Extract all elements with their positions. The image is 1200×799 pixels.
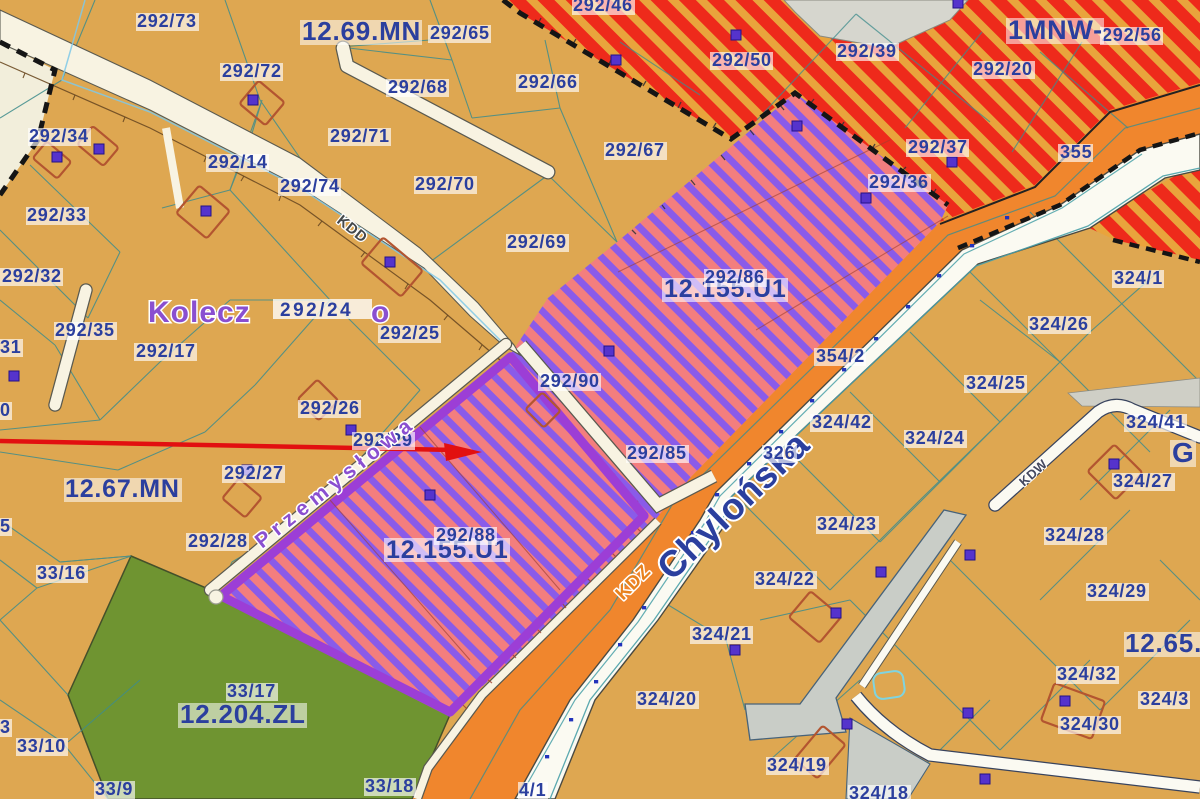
svg-text:292/37: 292/37 [908, 137, 968, 157]
svg-text:324/24: 324/24 [905, 428, 965, 448]
svg-text:292/67: 292/67 [605, 140, 665, 160]
svg-text:324/42: 324/42 [812, 412, 872, 432]
svg-text:0: 0 [0, 400, 11, 420]
svg-text:324/23: 324/23 [817, 514, 877, 534]
svg-text:324/28: 324/28 [1045, 525, 1105, 545]
svg-text:292/35: 292/35 [55, 320, 115, 340]
svg-text:292/14: 292/14 [208, 152, 268, 172]
svg-text:292/68: 292/68 [388, 77, 448, 97]
svg-text:33/16: 33/16 [37, 563, 86, 583]
svg-text:292/56: 292/56 [1102, 25, 1162, 45]
svg-text:324/18: 324/18 [849, 783, 909, 799]
svg-text:355: 355 [1060, 142, 1092, 162]
svg-text:292/72: 292/72 [222, 61, 282, 81]
svg-text:292/26: 292/26 [300, 398, 360, 418]
svg-text:33/10: 33/10 [17, 736, 66, 756]
svg-text:292/71: 292/71 [330, 126, 390, 146]
svg-text:324/26: 324/26 [1029, 314, 1089, 334]
svg-text:4/1: 4/1 [519, 780, 546, 799]
svg-text:292/28: 292/28 [188, 531, 248, 551]
svg-text:324/41: 324/41 [1126, 412, 1186, 432]
svg-text:292/90: 292/90 [540, 371, 600, 391]
svg-text:292/73: 292/73 [137, 11, 197, 31]
svg-text:12.67.MN: 12.67.MN [65, 475, 180, 503]
svg-text:324/25: 324/25 [966, 373, 1026, 393]
svg-text:324/21: 324/21 [692, 624, 752, 644]
svg-text:G: G [1172, 437, 1195, 468]
svg-text:3: 3 [0, 717, 11, 737]
svg-text:33/9: 33/9 [95, 779, 133, 799]
svg-text:354/2: 354/2 [816, 346, 865, 366]
svg-text:292/70: 292/70 [415, 174, 475, 194]
svg-text:324/27: 324/27 [1113, 471, 1173, 491]
svg-text:292/33: 292/33 [27, 205, 87, 225]
svg-text:12.65.: 12.65. [1125, 628, 1200, 658]
svg-text:292/25: 292/25 [380, 323, 440, 343]
svg-text:292/74: 292/74 [280, 176, 340, 196]
svg-text:33/18: 33/18 [365, 776, 414, 796]
svg-text:292/86: 292/86 [705, 267, 765, 287]
svg-text:292/88: 292/88 [436, 525, 496, 545]
svg-text:292/66: 292/66 [518, 72, 578, 92]
svg-text:292/69: 292/69 [507, 232, 567, 252]
svg-text:292/32: 292/32 [2, 266, 62, 286]
svg-text:31: 31 [0, 337, 22, 357]
svg-text:Kolecz: Kolecz [148, 296, 251, 329]
svg-text:292/85: 292/85 [627, 443, 687, 463]
svg-text:292/27: 292/27 [224, 463, 284, 483]
svg-text:292/24: 292/24 [280, 300, 353, 321]
svg-text:324/19: 324/19 [767, 755, 827, 775]
svg-text:292/34: 292/34 [29, 126, 89, 146]
svg-text:5: 5 [0, 516, 11, 536]
svg-text:292/50: 292/50 [712, 50, 772, 70]
svg-text:292/20: 292/20 [973, 59, 1033, 79]
svg-text:1MNW-: 1MNW- [1008, 15, 1103, 45]
svg-text:292/46: 292/46 [573, 0, 633, 15]
svg-text:324/22: 324/22 [755, 569, 815, 589]
svg-text:324/29: 324/29 [1087, 581, 1147, 601]
svg-text:324/32: 324/32 [1057, 664, 1117, 684]
svg-text:292/65: 292/65 [430, 23, 490, 43]
svg-text:292/36: 292/36 [869, 172, 929, 192]
svg-text:326: 326 [763, 443, 795, 463]
svg-text:12.204.ZL: 12.204.ZL [180, 699, 306, 729]
svg-text:324/20: 324/20 [637, 689, 697, 709]
svg-text:324/30: 324/30 [1060, 714, 1120, 734]
svg-text:33/17: 33/17 [227, 681, 276, 701]
svg-text:292/39: 292/39 [837, 41, 897, 61]
svg-text:324/3: 324/3 [1140, 689, 1189, 709]
svg-text:292/17: 292/17 [136, 341, 196, 361]
svg-text:12.69.MN: 12.69.MN [302, 16, 421, 46]
svg-text:324/1: 324/1 [1114, 268, 1163, 288]
